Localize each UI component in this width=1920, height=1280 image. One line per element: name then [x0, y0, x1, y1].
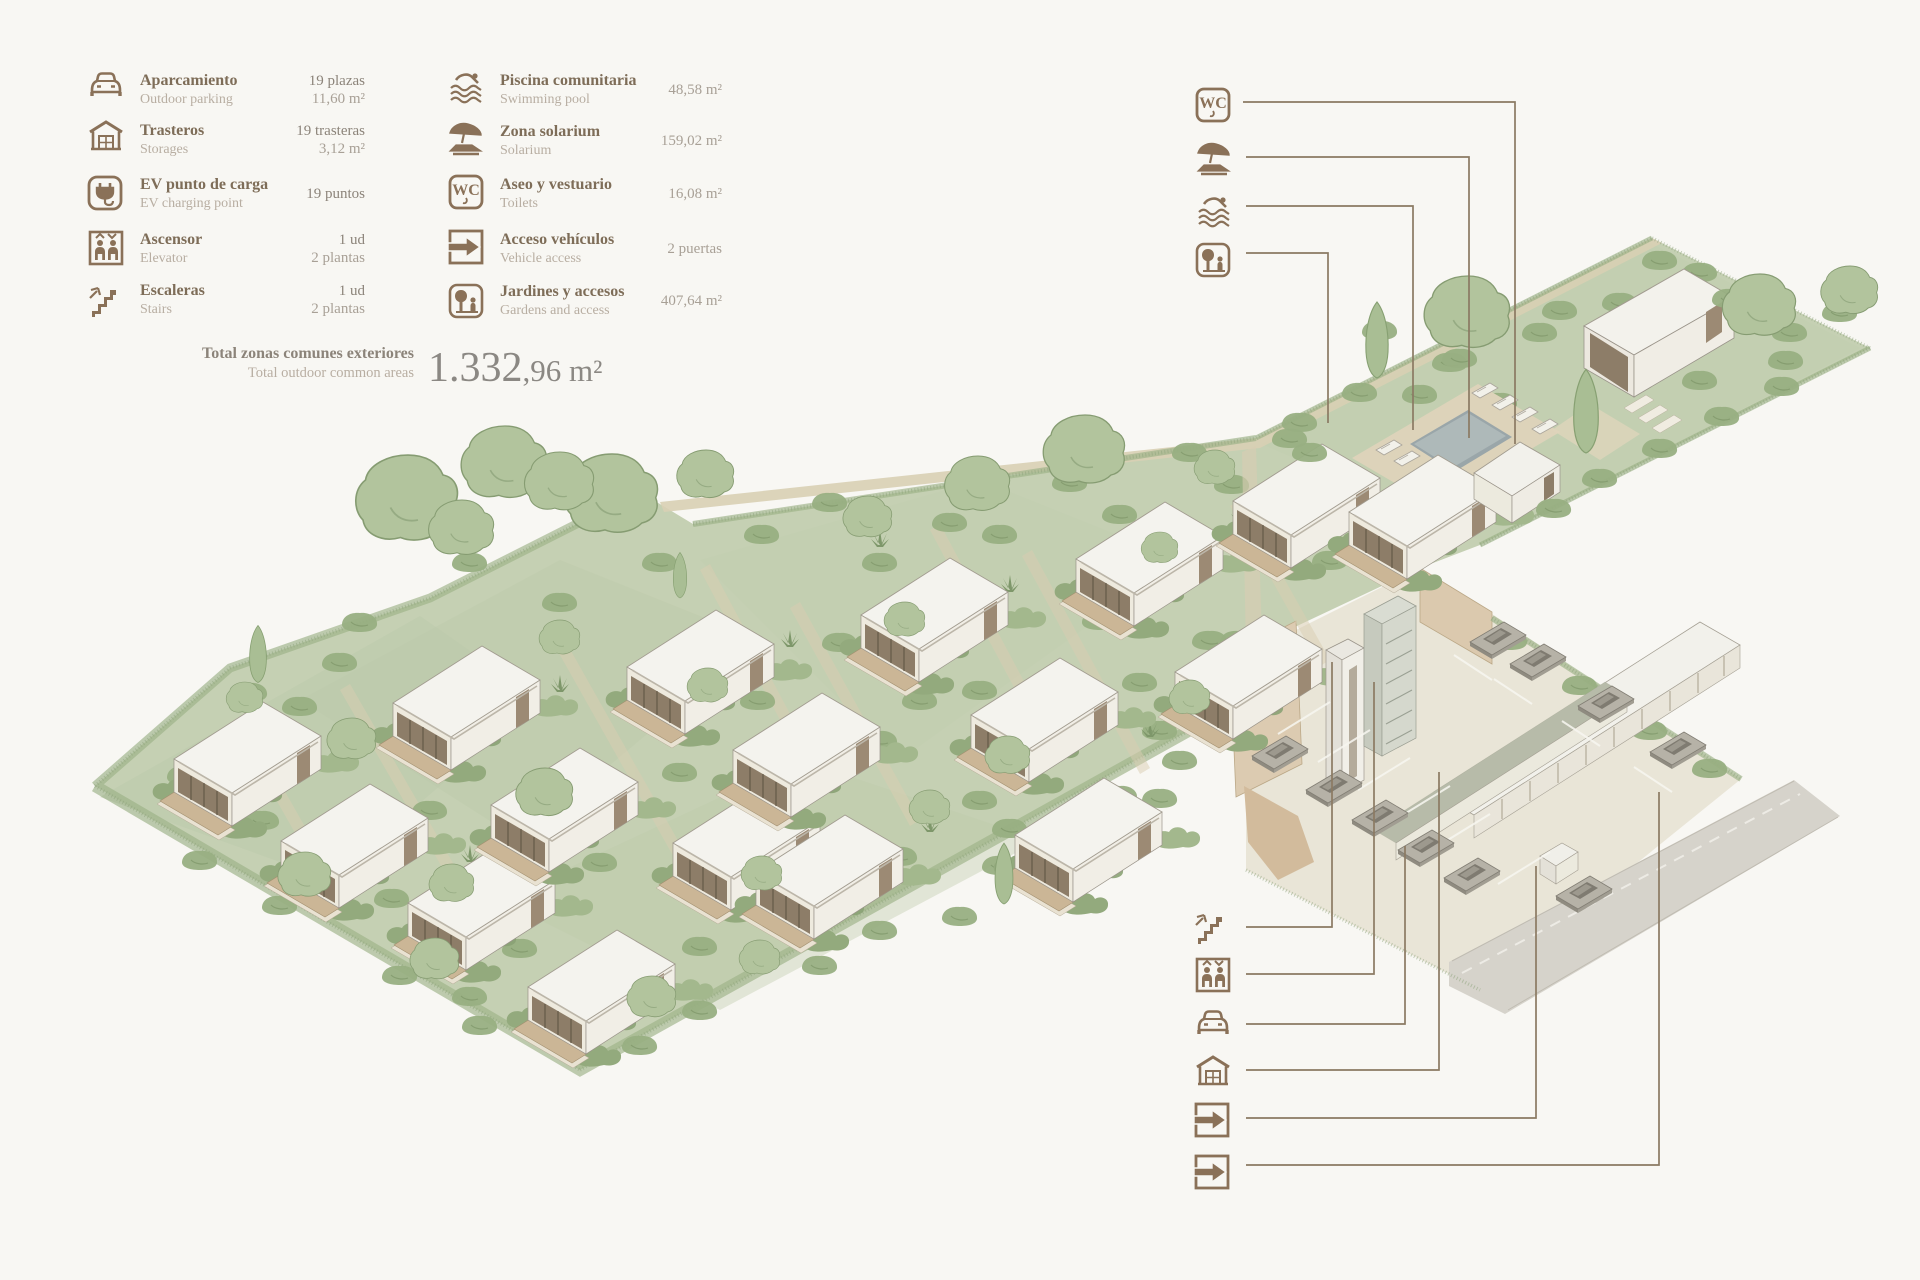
svg-text:Trasteros: Trasteros — [140, 122, 204, 139]
svg-text:EV punto de carga: EV punto de carga — [140, 176, 268, 193]
svg-text:Stairs: Stairs — [140, 302, 172, 317]
svg-text:Elevator: Elevator — [140, 251, 188, 266]
svg-text:16,08 m²: 16,08 m² — [668, 186, 722, 202]
svg-text:19 puntos: 19 puntos — [306, 186, 365, 202]
svg-text:Outdoor parking: Outdoor parking — [140, 92, 233, 107]
svg-text:407,64 m²: 407,64 m² — [661, 293, 723, 309]
svg-text:Zona solarium: Zona solarium — [500, 123, 601, 140]
svg-text:Solarium: Solarium — [500, 143, 551, 158]
svg-text:1 ud: 1 ud — [339, 232, 366, 248]
svg-text:159,02 m²: 159,02 m² — [661, 133, 723, 149]
svg-text:Acceso vehículos: Acceso vehículos — [500, 231, 614, 248]
svg-text:Toilets: Toilets — [500, 196, 538, 211]
svg-text:Ascensor: Ascensor — [140, 231, 202, 248]
svg-text:EV charging point: EV charging point — [140, 196, 243, 211]
svg-text:Vehicle access: Vehicle access — [500, 251, 581, 266]
svg-text:Storages: Storages — [140, 142, 188, 157]
svg-text:11,60 m²: 11,60 m² — [312, 91, 366, 107]
svg-text:Gardens and access: Gardens and access — [500, 303, 610, 318]
svg-text:Escaleras: Escaleras — [140, 282, 205, 299]
svg-text:19 trasteras: 19 trasteras — [296, 123, 365, 139]
svg-text:Total zonas comunes exteriores: Total zonas comunes exteriores — [202, 345, 414, 362]
svg-text:Swimming pool: Swimming pool — [500, 92, 590, 107]
svg-text:2 plantas: 2 plantas — [311, 250, 365, 266]
svg-text:Jardines y accesos: Jardines y accesos — [500, 283, 624, 300]
svg-text:Total outdoor common areas: Total outdoor common areas — [248, 365, 414, 381]
svg-text:Aseo y vestuario: Aseo y vestuario — [500, 176, 612, 193]
svg-text:19 plazas: 19 plazas — [309, 73, 365, 89]
svg-text:2 plantas: 2 plantas — [311, 301, 365, 317]
svg-text:Aparcamiento: Aparcamiento — [140, 72, 237, 89]
svg-text:3,12 m²: 3,12 m² — [319, 141, 366, 157]
svg-text:2 puertas: 2 puertas — [667, 241, 722, 257]
svg-text:1 ud: 1 ud — [339, 283, 366, 299]
svg-text:Piscina comunitaria: Piscina comunitaria — [500, 72, 636, 89]
svg-text:48,58 m²: 48,58 m² — [668, 82, 722, 98]
